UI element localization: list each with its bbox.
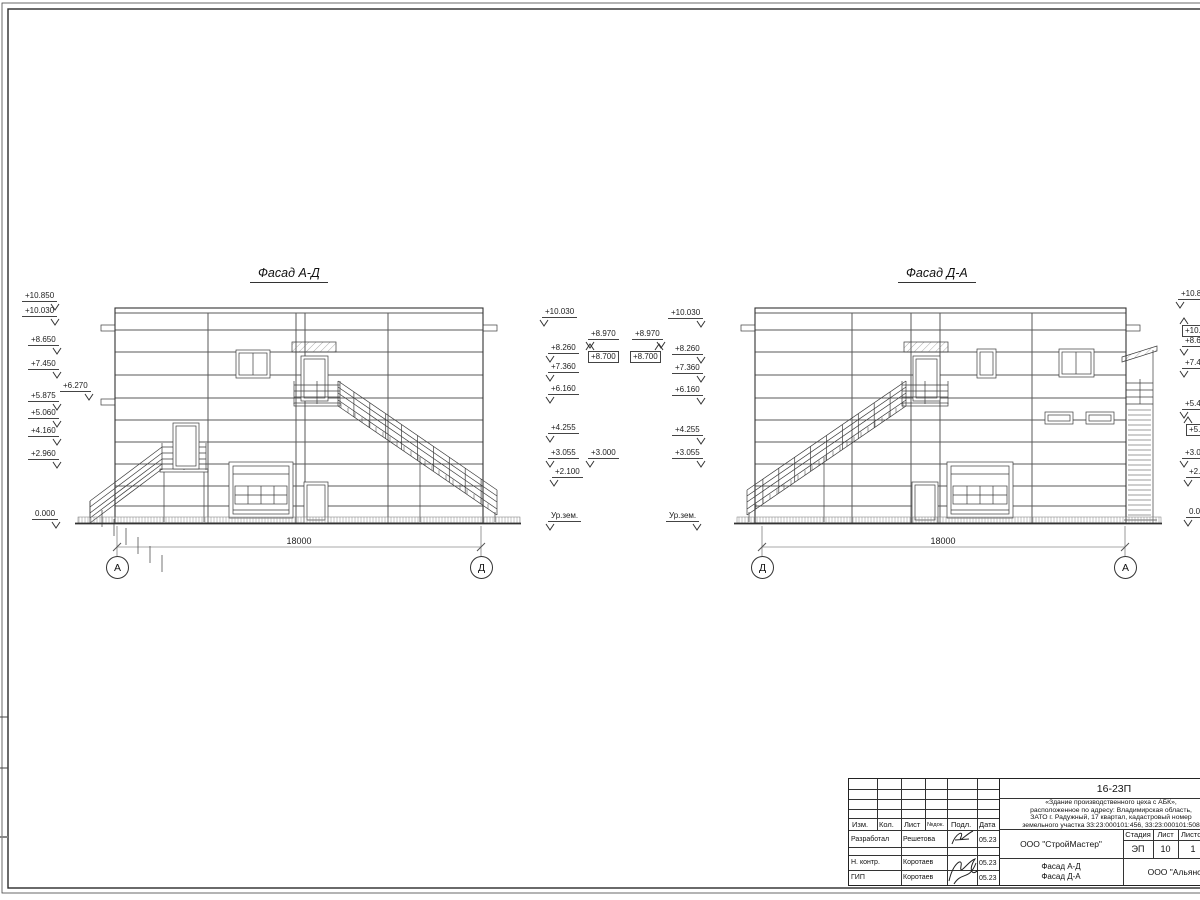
description-line: «Здание производственного цеха с АБК», [1001, 799, 1200, 807]
drawing-sheet: Фасад А-Д Фасад Д-А 18000 18000 А Д Д А … [0, 0, 1200, 900]
down-arrow-icon [544, 396, 556, 404]
elevation-mark: +8.700 [588, 351, 619, 363]
down-arrow-icon [695, 375, 707, 383]
elevation-mark: +3.000 [588, 448, 619, 459]
elevation-mark: +5.08 [1186, 424, 1200, 436]
elevation-mark: +5.48 [1182, 399, 1200, 410]
down-arrow-icon [544, 374, 556, 382]
down-arrow-icon [695, 460, 707, 468]
down-arrow-icon [51, 438, 63, 446]
elevation-mark: +10.030 [668, 308, 703, 319]
down-arrow-icon [50, 521, 62, 529]
elevation-mark: +8.260 [672, 344, 703, 355]
elevation-mark: +8.65 [1182, 336, 1200, 347]
down-arrow-icon [1178, 370, 1190, 378]
description-line: ЗАТО г. Радужный, 17 квартал, кадастровы… [1001, 814, 1200, 822]
down-arrow-icon [49, 318, 61, 326]
elevation-mark: +7.360 [672, 363, 703, 374]
down-arrow-icon [538, 319, 550, 327]
elevation-mark: 0.00 [1186, 507, 1200, 518]
elevation-mark: +8.700 [630, 351, 661, 363]
sheets-total: 1 [1178, 840, 1200, 858]
down-arrow-icon [1182, 519, 1194, 527]
down-arrow-icon [695, 397, 707, 405]
up-arrow-icon [653, 343, 665, 351]
up-arrow-icon [584, 343, 596, 351]
elevation-mark: +10.030 [542, 307, 577, 318]
col-ndok: №док. [927, 822, 944, 828]
down-arrow-icon [584, 460, 596, 468]
role-name: Коротаев [903, 859, 933, 866]
elevation-mark: +7.450 [28, 359, 59, 370]
elevation-mark: +10.850 [22, 291, 57, 302]
signature [948, 827, 978, 849]
col-izm: Изм. [852, 820, 868, 829]
elevation-mark: +3.055 [548, 448, 579, 459]
down-arrow-icon [51, 371, 63, 379]
sheet-number: 10 [1153, 840, 1178, 858]
drawing-title-line: Фасад Д-А [1041, 872, 1080, 882]
role-name: Решетова [903, 836, 935, 843]
signature [945, 853, 981, 885]
elevation-mark: +10.8 [1178, 289, 1200, 300]
elevation-mark: +3.055 [672, 448, 703, 459]
project-description: «Здание производственного цеха с АБК», р… [1001, 799, 1200, 829]
down-arrow-icon [544, 523, 556, 531]
elevation-mark: +8.260 [548, 343, 579, 354]
col-date: Дата [979, 820, 996, 829]
down-arrow-icon [83, 393, 95, 401]
client-org: ООО "Альянс" [1123, 858, 1200, 885]
sheets-label: Листов [1178, 829, 1200, 840]
elevation-mark: 0.000 [32, 509, 58, 520]
elevation-mark: +5.875 [28, 391, 59, 402]
elevation-mark: +2.960 [28, 449, 59, 460]
designer-org: ООО "СтройМастер" [999, 829, 1123, 858]
up-arrow-icon [1182, 416, 1194, 424]
elevation-mark: +10.030 [22, 306, 57, 317]
stage-value: ЭП [1123, 840, 1153, 858]
ground-level-mark: Ур.зем. [666, 511, 699, 522]
down-arrow-icon [695, 437, 707, 445]
elevation-mark: +6.270 [60, 381, 91, 392]
elevation-mark: +7.360 [548, 362, 579, 373]
up-arrow-icon [1178, 317, 1190, 325]
elevation-mark: +2.100 [552, 467, 583, 478]
elevation-marks-layer: +10.850+10.030+8.650+7.450+6.270+5.875+5… [0, 0, 1200, 900]
elevation-mark: +6.160 [672, 385, 703, 396]
down-arrow-icon [51, 461, 63, 469]
elevation-mark: +8.650 [28, 335, 59, 346]
drawing-title: Фасад А-Д Фасад Д-А [999, 858, 1123, 885]
elevation-mark: +5.060 [28, 408, 59, 419]
role-date: 05.23 [979, 875, 997, 882]
role-name: Коротаев [903, 874, 933, 881]
title-block: Изм. Кол. Лист №док. Подл. Дата Разработ… [848, 778, 1200, 886]
elevation-mark: +3.00 [1182, 448, 1200, 459]
elevation-mark: +6.160 [548, 384, 579, 395]
role-date: 05.23 [979, 860, 997, 867]
elevation-mark: +2.10 [1186, 467, 1200, 478]
elevation-mark: +7.45 [1182, 358, 1200, 369]
down-arrow-icon [1174, 301, 1186, 309]
down-arrow-icon [691, 523, 703, 531]
down-arrow-icon [1178, 348, 1190, 356]
sheet-label: Лист [1153, 829, 1178, 840]
ground-level-mark: Ур.зем. [548, 511, 581, 522]
elevation-mark: +8.970 [632, 329, 663, 340]
down-arrow-icon [548, 479, 560, 487]
stage-label: Стадия [1123, 829, 1153, 840]
doc-number: 16-23П [999, 779, 1200, 798]
down-arrow-icon [51, 347, 63, 355]
elevation-mark: +8.970 [588, 329, 619, 340]
role-label: Разработал [851, 836, 889, 843]
role-label: Н. контр. [851, 859, 880, 866]
elevation-mark: +4.160 [28, 426, 59, 437]
down-arrow-icon [544, 435, 556, 443]
elevation-mark: +4.255 [672, 425, 703, 436]
role-date: 05.23 [979, 837, 997, 844]
role-label: ГИП [851, 874, 865, 881]
down-arrow-icon [1182, 479, 1194, 487]
down-arrow-icon [695, 320, 707, 328]
drawing-title-line: Фасад А-Д [1041, 862, 1080, 872]
elevation-mark: +4.255 [548, 423, 579, 434]
col-list: Лист [904, 820, 920, 829]
col-kol: Кол. [879, 820, 894, 829]
